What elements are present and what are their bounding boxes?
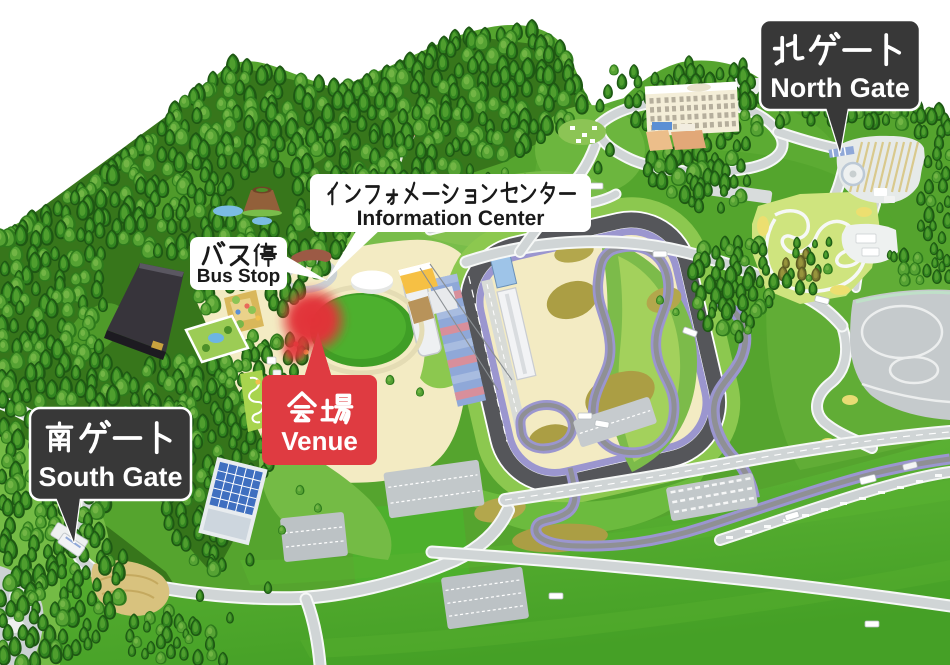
svg-text:Venue: Venue: [281, 426, 358, 456]
svg-text:Bus Stop: Bus Stop: [197, 266, 280, 287]
svg-text:Information Center: Information Center: [357, 207, 545, 230]
svg-text:South Gate: South Gate: [38, 462, 182, 492]
svg-text:North Gate: North Gate: [770, 73, 910, 103]
